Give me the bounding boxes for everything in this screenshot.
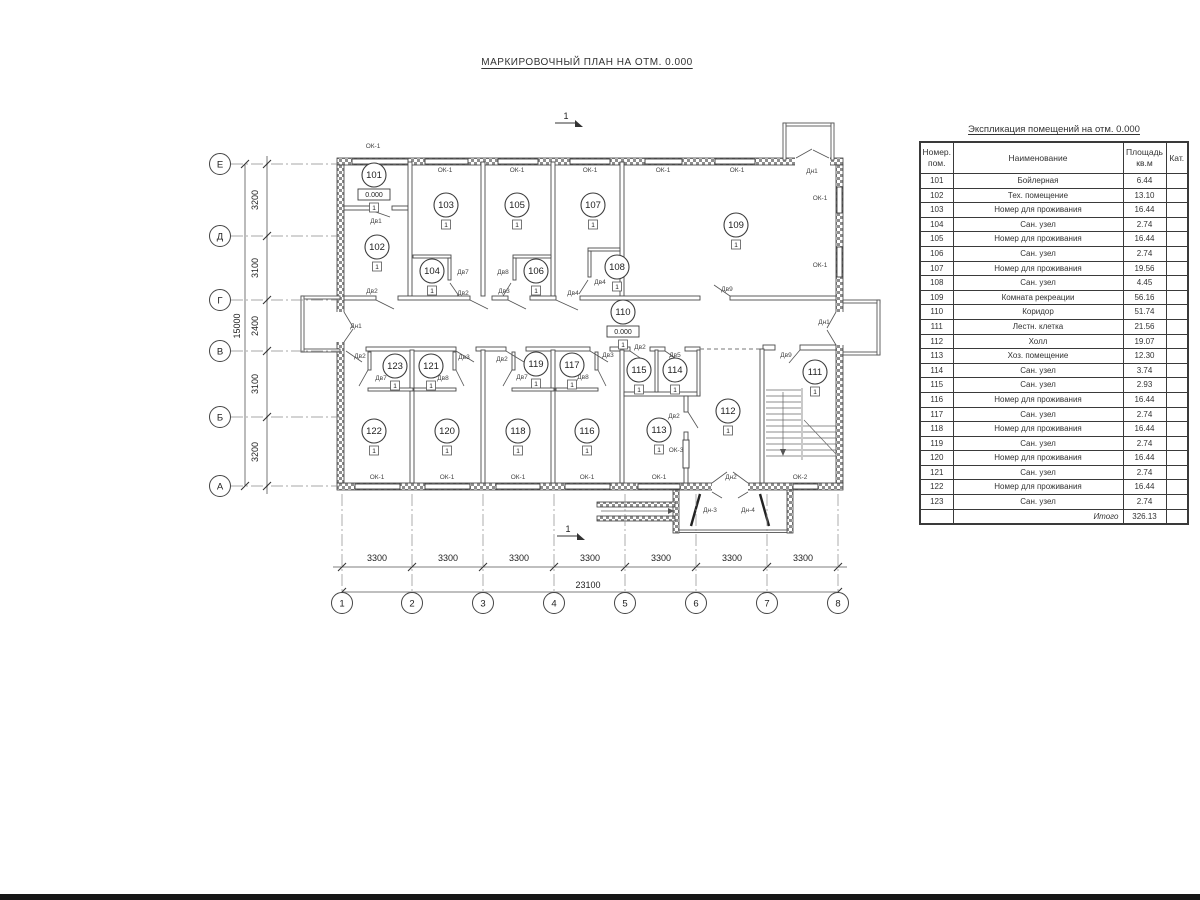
plan-annotation: Дн1 xyxy=(806,168,818,175)
room-label-107: 1071 xyxy=(581,193,605,229)
floor-type-marker: 1 xyxy=(585,448,589,455)
floor-type-marker: 1 xyxy=(375,264,379,271)
axis-label: 5 xyxy=(622,599,627,610)
room-label-118: 1181 xyxy=(506,419,530,455)
plan-annotation: ОК-1 xyxy=(511,474,526,481)
plan-annotation: Дв3 xyxy=(602,352,614,359)
plan-annotation: Дв2 xyxy=(366,288,378,295)
plan-annotation: Дв2 xyxy=(668,413,680,420)
schedule-row: 101Бойлерная6.44 xyxy=(920,174,1188,189)
schedule-row: 104Сан. узел2.74 xyxy=(920,217,1188,232)
plan-annotation: Дв2 xyxy=(354,353,366,360)
room-label-101: 1010.0001 xyxy=(358,163,390,212)
room-number: 109 xyxy=(728,220,744,231)
room-number: 121 xyxy=(423,361,439,372)
room-label-115: 1151 xyxy=(627,358,651,394)
schedule-row: 103Номер для проживания16.44 xyxy=(920,203,1188,218)
room-number: 108 xyxy=(609,262,625,273)
col-room-category: Кат. xyxy=(1166,142,1188,174)
schedule-row: 112Холл19.07 xyxy=(920,334,1188,349)
schedule-row: 108Сан. узел4.45 xyxy=(920,276,1188,291)
plan-annotation: Дв8 xyxy=(577,374,589,381)
room-label-102: 1021 xyxy=(365,235,389,271)
room-label-110: 1100.0001 xyxy=(607,300,639,349)
room-label-123: 1231 xyxy=(383,354,407,390)
floor-type-marker: 1 xyxy=(372,205,376,212)
room-number: 101 xyxy=(366,170,382,181)
dimension-value: 3300 xyxy=(793,553,813,563)
entrance-ramp xyxy=(597,502,675,521)
floor-type-marker: 1 xyxy=(621,342,625,349)
drawing-sheet: { "title": "МАРКИРОВОЧНЫЙ ПЛАН НА ОТМ. 0… xyxy=(0,0,1200,900)
dimension-value: 3100 xyxy=(250,258,260,278)
bottom-edge xyxy=(0,894,1200,900)
dimension-value: 3300 xyxy=(580,553,600,563)
plan-annotation: Дв4 xyxy=(594,279,606,286)
axis-label: В xyxy=(217,347,223,358)
room-number: 119 xyxy=(528,359,543,370)
schedule-row: 109Комната рекреации56.16 xyxy=(920,290,1188,305)
plan-annotation: Дв3 xyxy=(498,288,510,295)
plan-annotation: ОК-1 xyxy=(510,167,525,174)
plan-annotation: ОК-1 xyxy=(438,167,453,174)
floor-type-marker: 1 xyxy=(445,448,449,455)
plan-annotation: Дв3 xyxy=(458,354,470,361)
floor-type-marker: 1 xyxy=(393,383,397,390)
dimension-value: 3200 xyxy=(250,442,260,462)
room-label-111: 1111 xyxy=(803,360,827,396)
room-number: 103 xyxy=(438,200,454,211)
plan-annotation: ОК-2 xyxy=(793,474,808,481)
room-label-119: 1191 xyxy=(524,352,548,388)
col-room-number: Номер. пом. xyxy=(920,142,953,174)
room-label-113: 1131 xyxy=(647,418,671,454)
plan-annotation: Дв2 xyxy=(496,356,508,363)
section-mark-number: 1 xyxy=(563,111,568,121)
floor-type-marker: 1 xyxy=(615,284,619,291)
plan-annotation: Дн-4 xyxy=(741,507,755,514)
schedule-row: 121Сан. узел2.74 xyxy=(920,465,1188,480)
schedule-row: 105Номер для проживания16.44 xyxy=(920,232,1188,247)
room-label-116: 1161 xyxy=(575,419,599,455)
schedule-row: 107Номер для проживания19.56 xyxy=(920,261,1188,276)
plan-annotation: Дв9 xyxy=(780,352,792,359)
axis-label: 8 xyxy=(835,599,840,610)
floor-type-marker: 1 xyxy=(516,448,520,455)
room-number: 115 xyxy=(631,365,646,376)
plan-annotation: Дв4 xyxy=(567,290,579,297)
schedule-row: 119Сан. узел2.74 xyxy=(920,436,1188,451)
dimension-value: 3300 xyxy=(651,553,671,563)
room-label-105: 1051 xyxy=(505,193,529,229)
room-number: 110 xyxy=(615,307,630,318)
room-label-122: 1221 xyxy=(362,419,386,455)
plan-annotation: ОК-1 xyxy=(366,143,381,150)
plan-annotation: ОК-1 xyxy=(813,262,828,269)
room-number: 106 xyxy=(528,266,544,277)
room-number: 122 xyxy=(366,426,382,437)
level-mark: 0.000 xyxy=(614,329,632,336)
axis-label: 3 xyxy=(480,599,485,610)
room-number: 105 xyxy=(509,200,525,211)
entrance-vestibule xyxy=(673,490,793,533)
plan-annotation: Дн1 xyxy=(350,323,362,330)
schedule-row: 120Номер для проживания16.44 xyxy=(920,451,1188,466)
plan-annotation: ОК-1 xyxy=(440,474,455,481)
floor-type-marker: 1 xyxy=(534,288,538,295)
floor-type-marker: 1 xyxy=(813,389,817,396)
schedule-row: 123Сан. узел2.74 xyxy=(920,495,1188,510)
floor-type-marker: 1 xyxy=(657,447,661,454)
room-number: 104 xyxy=(424,266,440,277)
room-label-106: 1061 xyxy=(524,259,548,295)
room-number: 116 xyxy=(579,426,594,437)
room-number: 120 xyxy=(439,426,455,437)
room-number: 102 xyxy=(369,242,385,253)
axis-label: Б xyxy=(217,413,223,424)
plan-annotation: Дв8 xyxy=(437,375,449,382)
floor-type-marker: 1 xyxy=(515,222,519,229)
schedule-row: 113Хоз. помещение12.30 xyxy=(920,349,1188,364)
plan-annotation: ОК-3 xyxy=(669,447,684,454)
room-label-121: 1211 xyxy=(419,354,443,390)
room-number: 123 xyxy=(387,361,403,372)
plan-annotation: ОК-1 xyxy=(583,167,598,174)
plan-annotation: Дв7 xyxy=(516,374,528,381)
plan-annotation: Дв7 xyxy=(457,269,469,276)
floor-type-marker: 1 xyxy=(637,387,641,394)
room-label-112: 1121 xyxy=(716,399,740,435)
plan-annotation: ОК-1 xyxy=(370,474,385,481)
schedule-header-row: Номер. пом. Наименование Площадь кв.м Ка… xyxy=(920,142,1188,174)
room-number: 107 xyxy=(585,200,601,211)
room-number: 111 xyxy=(808,367,822,378)
axis-label: Д xyxy=(217,232,224,243)
axis-label: 4 xyxy=(551,599,556,610)
room-label-104: 1041 xyxy=(420,259,444,295)
floor-type-marker: 1 xyxy=(429,383,433,390)
room-label-117: 1171 xyxy=(560,353,584,389)
floor-type-marker: 1 xyxy=(534,381,538,388)
schedule-row: 110Коридор51.74 xyxy=(920,305,1188,320)
plan-annotation: ОК-1 xyxy=(730,167,745,174)
floor-type-marker: 1 xyxy=(726,428,730,435)
plan-annotation: Дв2 xyxy=(634,344,646,351)
schedule-row: 115Сан. узел2.93 xyxy=(920,378,1188,393)
axis-label: 2 xyxy=(409,599,414,610)
plan-annotation: Дн1 xyxy=(818,319,830,326)
floor-type-marker: 1 xyxy=(570,382,574,389)
room-label-109: 1091 xyxy=(724,213,748,249)
plan-annotation: Дн-3 xyxy=(703,507,717,514)
room-schedule: Экспликация помещений на отм. 0.000 Номе… xyxy=(919,124,1189,525)
schedule-row: 114Сан. узел3.74 xyxy=(920,363,1188,378)
axis-label: 7 xyxy=(764,599,769,610)
dimension-total: 15000 xyxy=(232,313,242,338)
floor-type-marker: 1 xyxy=(430,288,434,295)
plan-annotation: Дв1 xyxy=(370,218,382,225)
room-label-114: 1141 xyxy=(663,358,687,394)
dimension-value: 3300 xyxy=(367,553,387,563)
room-number: 112 xyxy=(720,406,735,417)
axis-label: 1 xyxy=(339,599,344,610)
floor-type-marker: 1 xyxy=(734,242,738,249)
room-number: 113 xyxy=(651,425,666,436)
room-label-103: 1031 xyxy=(434,193,458,229)
schedule-table: Номер. пом. Наименование Площадь кв.м Ка… xyxy=(919,141,1189,525)
dimension-value: 3300 xyxy=(438,553,458,563)
axis-label: Г xyxy=(217,296,222,307)
floor-type-marker: 1 xyxy=(591,222,595,229)
dimension-value: 2400 xyxy=(250,316,260,336)
room-number: 117 xyxy=(564,360,579,371)
plan-annotation: ОК-1 xyxy=(652,474,667,481)
axis-label: А xyxy=(217,482,224,493)
plan-annotation: Дв9 xyxy=(721,286,733,293)
schedule-row: 111Лестн. клетка21.56 xyxy=(920,319,1188,334)
dimension-value: 3300 xyxy=(722,553,742,563)
schedule-title: Экспликация помещений на отм. 0.000 xyxy=(919,124,1189,135)
plan-annotation: ОК-1 xyxy=(656,167,671,174)
level-mark: 0.000 xyxy=(365,192,383,199)
plan-annotation: ОК-1 xyxy=(813,195,828,202)
plan-annotation: Дв7 xyxy=(375,375,387,382)
schedule-row: 118Номер для проживания16.44 xyxy=(920,422,1188,437)
axis-label: Е xyxy=(217,160,223,171)
plan-annotation: Дн2 xyxy=(725,474,737,481)
dimension-value: 3300 xyxy=(509,553,529,563)
dimension-total: 23100 xyxy=(575,580,600,590)
schedule-row: 122Номер для проживания16.44 xyxy=(920,480,1188,495)
col-room-name: Наименование xyxy=(953,142,1123,174)
schedule-row: 106Сан. узел2.74 xyxy=(920,246,1188,261)
room-label-108: 1081 xyxy=(605,255,629,291)
schedule-row: 116Номер для проживания16.44 xyxy=(920,392,1188,407)
room-label-120: 1201 xyxy=(435,419,459,455)
room-number: 114 xyxy=(667,365,682,376)
plan-annotation: Дв8 xyxy=(497,269,509,276)
dimension-value: 3200 xyxy=(250,190,260,210)
floor-type-marker: 1 xyxy=(372,448,376,455)
schedule-total-row: Итого326.13 xyxy=(920,509,1188,524)
schedule-row: 117Сан. узел2.74 xyxy=(920,407,1188,422)
plan-annotation: Дв5 xyxy=(669,352,681,359)
floor-type-marker: 1 xyxy=(673,387,677,394)
section-mark-number: 1 xyxy=(565,524,570,534)
stairs xyxy=(766,388,836,460)
dimension-value: 3100 xyxy=(250,374,260,394)
room-number: 118 xyxy=(510,426,525,437)
col-room-area: Площадь кв.м xyxy=(1123,142,1166,174)
plan-annotation: ОК-1 xyxy=(580,474,595,481)
plan-labels: 1010.00011021103110411051106110711081109… xyxy=(210,111,849,614)
schedule-row: 102Тех. помещение13.10 xyxy=(920,188,1188,203)
floor-type-marker: 1 xyxy=(444,222,448,229)
plan-annotation: Дв2 xyxy=(457,290,469,297)
axis-label: 6 xyxy=(693,599,698,610)
